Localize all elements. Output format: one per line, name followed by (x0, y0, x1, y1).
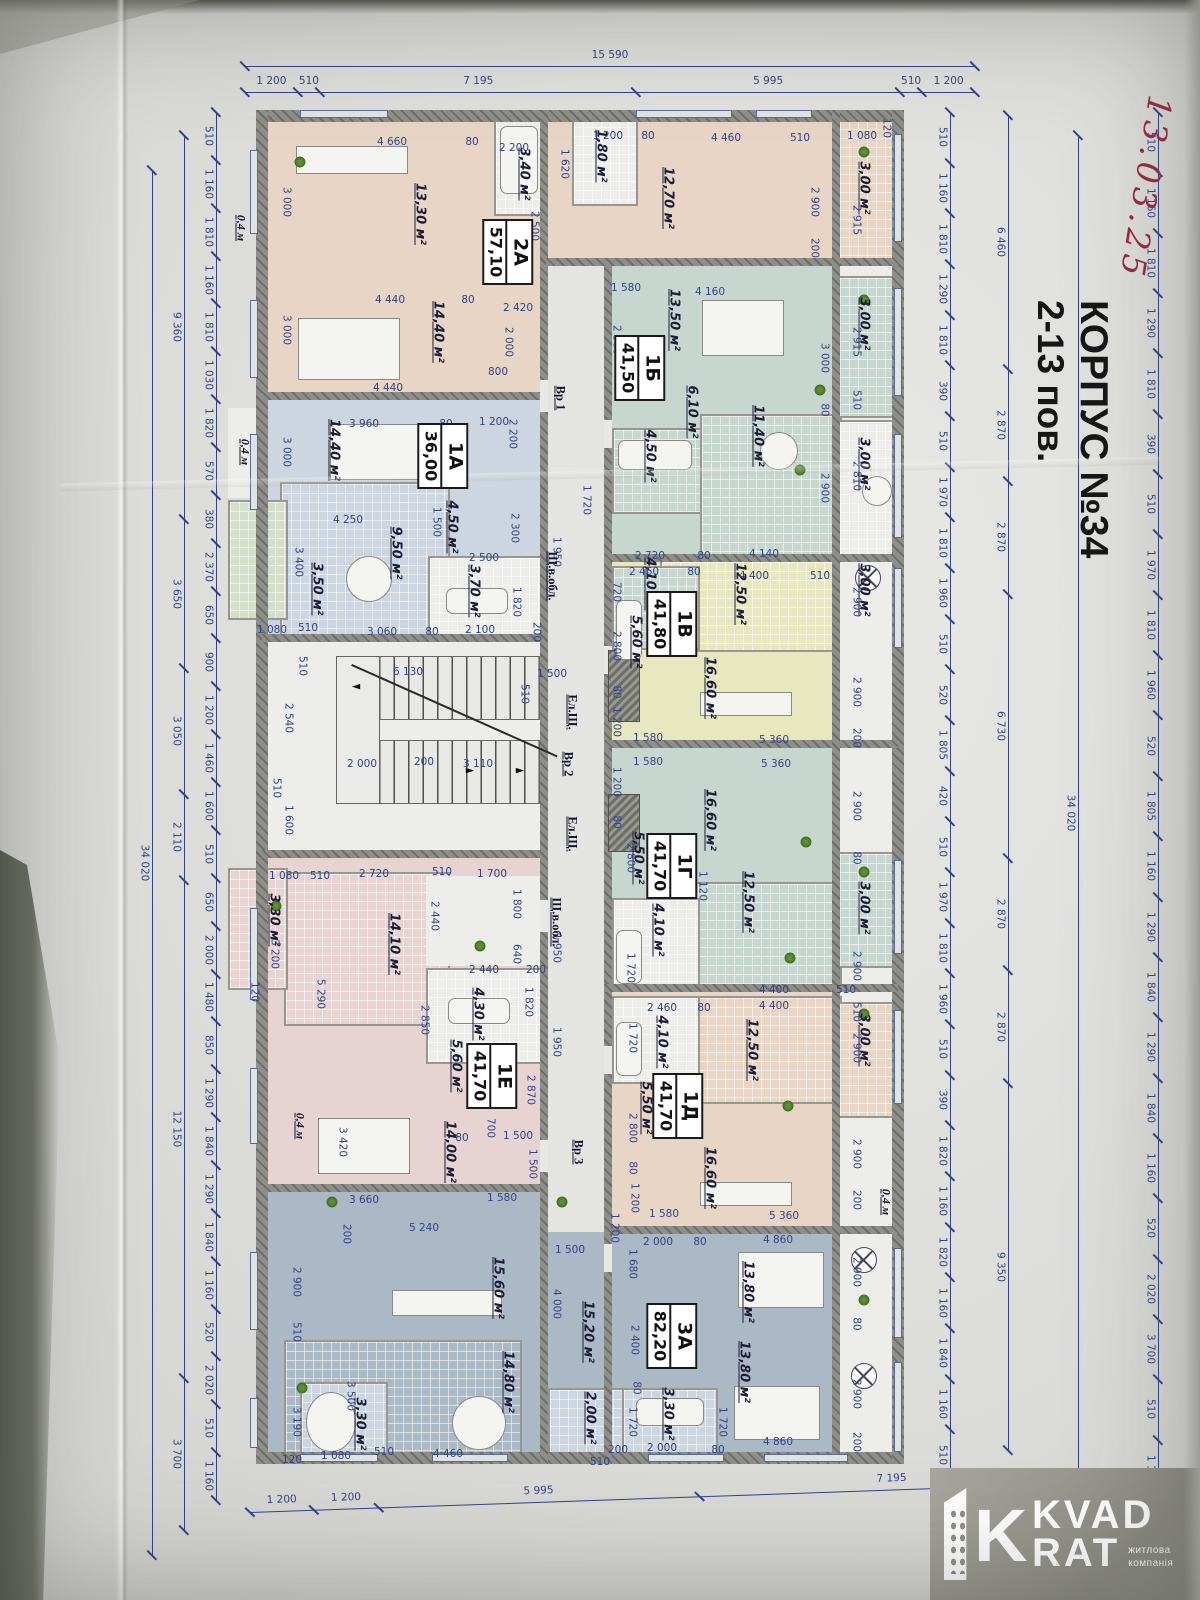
dimension-label: 510 (519, 684, 530, 704)
dimension-label: 80 (851, 851, 862, 864)
dimension-label: 120 (881, 118, 892, 138)
dimension-label: 2 200 (499, 143, 529, 154)
dimension-label: 800 (488, 367, 508, 378)
dimension-label: 200 (851, 728, 862, 748)
dimension-label: 3 050 (171, 716, 182, 746)
room-area-label: 15,20 м² (581, 1301, 596, 1363)
dimension-label: 510 (297, 656, 308, 676)
apartment-id: 1В (670, 593, 696, 655)
wall (604, 1226, 898, 1234)
dimension-label: 1 080 (847, 131, 877, 142)
apartment-total-area: 41,50 (617, 337, 638, 399)
door-opening (540, 380, 548, 412)
dimension-label: 2 000 (643, 1237, 673, 1248)
dimension-label: 1 960 (937, 578, 948, 608)
dimension-label: 1 810 (203, 217, 214, 247)
stair-direction-arrow: ► (516, 764, 524, 777)
dimension-label: 1 820 (523, 987, 534, 1017)
wall (546, 258, 898, 266)
dimension-label: 200 (608, 1445, 628, 1456)
dimension-label: 80 (461, 295, 474, 306)
furniture-bed (330, 424, 426, 480)
dimension-label: 1 200 (629, 1183, 640, 1213)
room-area-label: 9,50 м² (389, 527, 404, 580)
dimension-line (152, 170, 153, 1555)
room-area-label: 15,60 м² (491, 1257, 506, 1319)
furniture-table (452, 1396, 506, 1450)
dimension-label: 3 200 (269, 939, 280, 969)
room-area-label: 4,10 м² (655, 1016, 670, 1069)
dimension-label: 510 (937, 634, 948, 654)
dimension-label: 200 (851, 1432, 862, 1452)
room-area-label: 2,00 м² (583, 1392, 598, 1445)
dimension-label: 1 680 (627, 1249, 638, 1279)
room-area-label: 16,60 м² (703, 789, 718, 851)
dimension-label: 1 200 (611, 707, 622, 737)
dimension-label: 1 600 (203, 791, 214, 821)
apartment-badge-1Е: 1Е41,70 (467, 1043, 518, 1109)
dimension-label: 2 020 (203, 1365, 214, 1395)
dimension-label: 4 000 (551, 1289, 562, 1319)
plant-icon (815, 385, 826, 396)
dimension-label: 1 580 (649, 1209, 679, 1220)
dimension-label: 34 020 (1065, 794, 1076, 831)
dimension-label: 510 (310, 871, 330, 882)
dimension-chain: 5101 1601 8101 2901 8103905101 9701 8101… (1138, 112, 1178, 1500)
room-area-label: 3,40 м² (517, 148, 532, 201)
apartment-badge-1Б: 1Б41,50 (615, 335, 666, 401)
dimension-label: 510 (203, 844, 214, 864)
dimension-label: 1 810 (1145, 369, 1156, 399)
dimension-label: 2 800 (625, 843, 636, 873)
plant-icon (785, 953, 796, 964)
dimension-label: 7 195 (463, 76, 493, 87)
dimension-label: 2 900 (851, 1379, 862, 1409)
tech-label: Вр 2 (561, 752, 576, 777)
plant-icon (475, 941, 486, 952)
door-opening (540, 1140, 548, 1172)
dimension-label: 5 360 (761, 759, 791, 770)
dimension-label: 420 (937, 786, 948, 806)
room-area-label: 4,50 м² (445, 501, 460, 554)
plant-icon (859, 867, 870, 878)
dimension-label: 80 (465, 137, 478, 148)
logo-letter-k: K (974, 1490, 1027, 1582)
dimension-label: 1 810 (937, 528, 948, 558)
dimension-label: 1 200 (331, 1492, 361, 1504)
dimension-label: 1 160 (937, 1186, 948, 1216)
dimension-label: 1 080 (257, 625, 287, 636)
dimension-label: 2 900 (809, 187, 820, 217)
dimension-label: 9 350 (995, 1252, 1006, 1282)
plant-icon (795, 465, 806, 476)
dimension-label: 2 900 (851, 1257, 862, 1287)
dimension-label: 2 870 (525, 1075, 536, 1105)
dimension-label: 1 805 (937, 730, 948, 760)
dimension-label: 1 720 (627, 1023, 638, 1053)
dimension-label: 2 000 (503, 327, 514, 357)
window (250, 1068, 258, 1144)
door-opening (540, 900, 548, 932)
apartment-1Е-zone (426, 876, 546, 966)
dimension-label: 510 (937, 1445, 948, 1465)
plant-icon (801, 837, 812, 848)
dimension-label: 80 (641, 131, 654, 142)
logo-word-bottom: RAT (1032, 1534, 1120, 1572)
dimension-label: 4 400 (759, 985, 789, 996)
dimension-label: 80 (425, 627, 438, 638)
dimension-chain: 1 2005107 1955 9955101 200 (245, 72, 975, 112)
dimension-label: 1 600 (283, 805, 294, 835)
dimension-label: 2 500 (469, 553, 499, 564)
dimension-label: 4 860 (763, 1437, 793, 1448)
dimension-label: 3 110 (463, 759, 493, 770)
room-area-label: 14,40 м² (327, 419, 342, 481)
room-area-label: 5,60 м² (629, 616, 644, 669)
dimension-label: 5 360 (769, 1211, 799, 1222)
room-area-label: 12,50 м² (745, 1019, 760, 1081)
room-area-label: 14,10 м² (387, 913, 402, 975)
dimension-label: 510 (590, 1457, 610, 1468)
dimension-label: 2 000 (647, 1443, 677, 1454)
dimension-label: 200 (809, 238, 820, 258)
dimension-label: 2 900 (851, 587, 862, 617)
plant-icon (295, 157, 306, 168)
room-area-label: 3,30 м² (661, 1388, 676, 1441)
dimension-label: 2 850 (419, 1005, 430, 1035)
dimension-label: 1 810 (937, 224, 948, 254)
dimension-label: 2 100 (465, 625, 495, 636)
plant-icon (859, 147, 870, 158)
dimension-label: 700 (485, 1118, 496, 1138)
dimension-label: 1 290 (203, 1078, 214, 1108)
dimension-label: 510 (790, 133, 810, 144)
dimension-label: 850 (203, 1035, 214, 1055)
furniture-table (760, 432, 798, 470)
wall (262, 634, 546, 642)
dimension-label: 1 160 (1145, 851, 1156, 881)
dimension-label: 4 460 (711, 133, 741, 144)
dimension-label: 510 (1145, 494, 1156, 514)
door-opening (604, 420, 612, 448)
tech-label: Щ.в.обл. (545, 551, 560, 600)
apartment-total-area: 41,70 (649, 835, 670, 897)
dimension-label: 1 500 (431, 507, 442, 537)
dimension-label: 2 370 (203, 552, 214, 582)
dimension-label: 120 (282, 1455, 302, 1466)
furniture-bed (318, 1118, 410, 1174)
dimension-label: 1 810 (1145, 610, 1156, 640)
dimension-label: 1 800 (511, 889, 522, 919)
dimension-label: 510 (374, 1447, 394, 1458)
dimension-label: 2 540 (283, 703, 294, 733)
window (894, 1362, 902, 1452)
tech-label: Ел.Щ. (565, 694, 580, 729)
dimension-label: 3 400 (293, 547, 304, 577)
room-area-label: 4,50 м² (643, 430, 658, 483)
dimension-label: 1 500 (555, 1245, 585, 1256)
dimension-label: 2 900 (819, 473, 830, 503)
dimension-label: 1 840 (1145, 972, 1156, 1002)
window (764, 1454, 848, 1462)
dimension-label: 3 650 (171, 579, 182, 609)
apartment-id: 1Г (670, 835, 696, 897)
dimension-label: 510 (432, 867, 452, 878)
wall (262, 392, 546, 400)
dimension-label: 2 900 (851, 791, 862, 821)
apartment-total-area: 82,20 (649, 1305, 670, 1367)
drawing-title: КОРПУС №34 2-13 пов. (1005, 300, 1115, 770)
dimension-label: 3 500 (345, 1381, 356, 1411)
dimension-line (245, 66, 975, 67)
photo-edge-shadow (0, 0, 1200, 14)
dimension-label: 2 460 (647, 1003, 677, 1014)
dimension-label: 510 (851, 390, 862, 410)
dimension-label: 510 (271, 778, 282, 798)
dimension-label: 640 (511, 944, 522, 964)
dimension-label: 4 440 (373, 383, 403, 394)
dimension-label: 1 580 (633, 733, 663, 744)
window (894, 860, 902, 954)
dimension-label: 5 360 (759, 735, 789, 746)
room-area-label: 3,70 м² (467, 565, 482, 618)
room-area-label: 13,80 м² (741, 1261, 756, 1323)
dimension-label: 2 915 (851, 205, 862, 235)
dimension-label: 1 290 (1145, 912, 1156, 942)
dimension-label: 2 400 (629, 1325, 640, 1355)
dimension-chain: 5101 1601 8101 1601 8101 0301 8205703802… (196, 112, 236, 1500)
dimension-label: 650 (203, 892, 214, 912)
dimension-label: 520 (1145, 1218, 1156, 1238)
dimension-label: 1 200 (256, 76, 286, 87)
dimension-label: 510 (299, 76, 319, 87)
dimension-label: 1 700 (477, 869, 507, 880)
room-area-label: 16,60 м² (703, 657, 718, 719)
table-background (0, 850, 60, 1600)
room-area-label: 4,10 м² (651, 904, 666, 957)
dimension-label: 80 (697, 551, 710, 562)
dimension-label: 2 800 (611, 631, 622, 661)
dimension-label: 80 (687, 567, 700, 578)
dimension-label: 1 840 (203, 1222, 214, 1252)
dimension-label: 1 290 (203, 1174, 214, 1204)
dimension-label: 2 420 (503, 303, 533, 314)
dimension-label: 1 805 (1145, 791, 1156, 821)
logo-tagline: житлова компанія (1128, 1545, 1173, 1570)
dimension-label: 900 (203, 652, 214, 672)
dimension-label: 4 460 (433, 1449, 463, 1460)
plant-icon (783, 1101, 794, 1112)
dimension-label: 3 960 (349, 419, 379, 430)
stair-landing (336, 656, 380, 804)
dimension-label: 2 460 (629, 567, 659, 578)
room-area-label: 13,50 м² (667, 289, 682, 351)
dimension-label: 510 (298, 623, 318, 634)
room-area-label: 4,30 м² (471, 988, 486, 1041)
dimension-label: 2 720 (359, 869, 389, 880)
dimension-label: 520 (203, 1322, 214, 1342)
apartment-id: 1Б (638, 337, 664, 399)
dimension-label: 5 290 (315, 979, 326, 1009)
dimension-label: 80 (711, 1445, 724, 1456)
dimension-label: 4 400 (739, 571, 769, 582)
dimension-label: 1 820 (511, 587, 522, 617)
dimension-label: 1 200 (479, 417, 509, 428)
dimension-label: 3 660 (349, 1195, 379, 1206)
dimension-label: 1 500 (537, 669, 567, 680)
dimension-label: 2 900 (851, 677, 862, 707)
stair-direction-arrow: ◄ (352, 680, 360, 693)
dimension-label: 1 160 (937, 1288, 948, 1318)
dimension-label: 200 (851, 1190, 862, 1210)
room-area-label: 14,00 м² (443, 1121, 458, 1183)
dimension-label: 510 (851, 1002, 862, 1022)
dimension-label: 1 080 (321, 1451, 351, 1462)
dimension-label: 2 200 (507, 419, 518, 449)
apartment-badge-2А: 2А57,10 (483, 219, 534, 285)
dimension-label: 1 720 (627, 1407, 638, 1437)
dimension-label: 2 440 (469, 965, 499, 976)
apartment-id: 1А (441, 425, 467, 487)
dimension-label: 1 160 (1145, 1153, 1156, 1183)
dimension-label: 2 020 (1145, 1274, 1156, 1304)
dimension-label: 1 820 (203, 408, 214, 438)
window (250, 300, 258, 378)
window (250, 1252, 258, 1330)
furniture-sofa (392, 1290, 502, 1316)
dimension-label: 200 (526, 965, 546, 976)
dimension-label: 34 020 (139, 844, 150, 881)
room-area-label: 12,70 м² (661, 167, 676, 229)
dimension-label: 1 200 (609, 1213, 620, 1243)
dimension-label: 2 870 (995, 1012, 1006, 1042)
dimension-label: 5 240 (409, 1223, 439, 1234)
dimension-label: 1 030 (203, 360, 214, 390)
dimension-label: 1 200 (934, 76, 964, 87)
dimension-label: 1 810 (937, 933, 948, 963)
dimension-label: 1 810 (203, 312, 214, 342)
dimension-label: 520 (937, 685, 948, 705)
dimension-label: 510 (291, 1322, 302, 1342)
dimension-label: 80 (627, 1161, 638, 1174)
dimension-label: 80 (697, 1003, 710, 1014)
dimension-label: 2 900 (851, 951, 862, 981)
dimension-label: 380 (203, 509, 214, 529)
dimension-label: 200 (531, 622, 542, 642)
dimension-label: 6 130 (393, 667, 423, 678)
room-area-label: 3,00 м² (857, 882, 872, 935)
dimension-label: 3 000 (281, 315, 292, 345)
dimension-label: 2 110 (171, 822, 182, 852)
window (894, 1248, 902, 1338)
room-area-label: 5,50 м² (639, 1082, 654, 1135)
dimension-label: 2 800 (627, 1113, 638, 1143)
plant-icon (327, 1197, 338, 1208)
dimension-label: 1 580 (633, 757, 663, 768)
dimension-label: 15 590 (592, 50, 629, 61)
tech-label: Щ.в.обл. (549, 897, 564, 946)
dimension-label: 1 960 (937, 984, 948, 1014)
wall (262, 850, 546, 858)
dimension-label: 7 195 (876, 1473, 906, 1485)
dimension-label: 1 720 (625, 953, 636, 983)
dimension-label: 3 700 (1145, 1334, 1156, 1364)
dimension-label: 2 000 (203, 935, 214, 965)
dimension-label: 4 140 (749, 549, 779, 560)
dimension-label: 1 810 (937, 325, 948, 355)
dimension-label: 1 840 (1145, 1093, 1156, 1123)
dimension-label: 3 190 (291, 1407, 302, 1437)
apartment-id: 1Е (490, 1045, 516, 1107)
dimension-label: 4 440 (375, 295, 405, 306)
dimension-label: 570 (203, 461, 214, 481)
kvadrat-logo-icon: K (944, 1482, 1030, 1586)
dimension-label: 510 (937, 127, 948, 147)
dimension-label: 390 (937, 1090, 948, 1110)
dimension-label: 5 995 (523, 1485, 553, 1497)
apartment-id: 3А (670, 1305, 696, 1367)
dimension-label: 80 (611, 685, 622, 698)
dimension-label: 390 (937, 381, 948, 401)
balcony-depth-label: 0,4 м (293, 1113, 308, 1139)
apartment-badge-1В: 1В41,80 (647, 591, 698, 657)
room-area-label: 13,80 м² (737, 1341, 752, 1403)
dimension-label: 2 870 (995, 410, 1006, 440)
furniture-bed (702, 300, 784, 356)
dimension-label: 2 440 (429, 901, 440, 931)
building-title: КОРПУС №34 (1071, 300, 1115, 770)
window (250, 150, 258, 234)
dimension-label: 1 840 (937, 1338, 948, 1368)
furniture-bed (298, 318, 400, 380)
dimension-label: 1 970 (937, 477, 948, 507)
dimension-label: 2 915 (851, 327, 862, 357)
dimension-label: 510 (203, 126, 214, 146)
window (894, 1010, 902, 1104)
dimension-label: 2 870 (995, 899, 1006, 929)
room-area-label: 11,40 м² (751, 405, 766, 467)
plant-icon (859, 1295, 870, 1306)
logo-word-top: KVAD (1032, 1496, 1173, 1534)
dimension-label: 3 060 (367, 627, 397, 638)
dimension-label: 1 500 (527, 1149, 538, 1179)
dimension-label: 1 160 (937, 1389, 948, 1419)
dimension-label: 390 (1145, 434, 1156, 454)
dimension-label: 510 (203, 1418, 214, 1438)
tech-label: Вр 1 (553, 386, 568, 411)
apartment-id: 1Д (676, 1075, 702, 1137)
dimension-line (245, 92, 975, 93)
dimension-label: 3 700 (171, 1439, 182, 1469)
dimension-label: 1 500 (503, 1131, 533, 1142)
dimension-label: 120 (249, 982, 260, 1002)
dimension-label: 1 290 (1145, 1032, 1156, 1062)
window (894, 568, 902, 648)
plant-icon (557, 1197, 568, 1208)
apartment-badge-3А: 3А82,20 (647, 1303, 698, 1369)
dimension-label: 2 810 (851, 461, 862, 491)
dimension-label: 510 (937, 1039, 948, 1059)
dimension-label: 3 000 (281, 437, 292, 467)
dimension-label: 510 (937, 431, 948, 451)
dimension-label: 80 (819, 403, 830, 416)
plant-icon (297, 1383, 308, 1394)
dimension-label: 80 (851, 1317, 862, 1330)
dimension-label: 1 840 (203, 1126, 214, 1156)
dimension-label: 1 820 (937, 1237, 948, 1267)
dimension-label: 1 620 (559, 149, 570, 179)
dimension-label: 6 730 (995, 711, 1006, 741)
